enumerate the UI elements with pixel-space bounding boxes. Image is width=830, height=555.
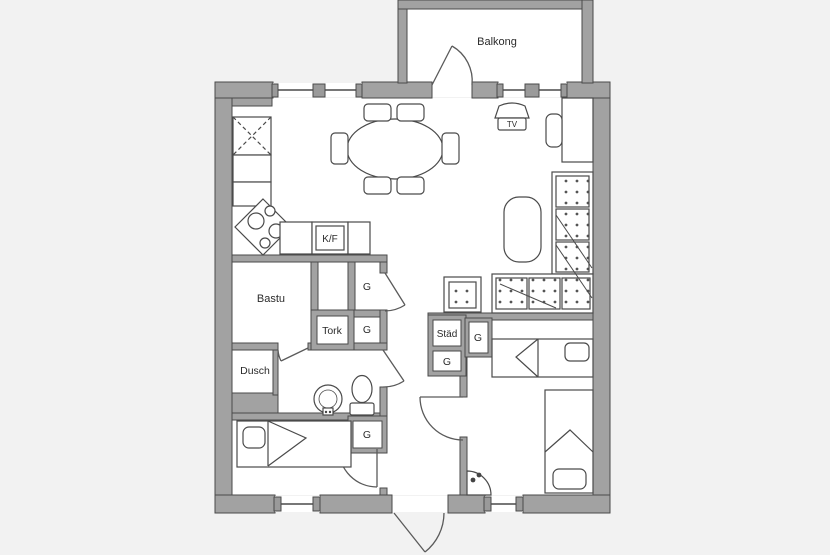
entry-door-opening — [392, 496, 448, 512]
window-bottom-2 — [484, 496, 523, 512]
wall-shower-block — [232, 393, 278, 413]
wall-bedroom2-left-lower — [460, 437, 467, 495]
window-post — [313, 84, 325, 97]
wall-kitchen-corner — [232, 98, 272, 106]
pillow — [243, 427, 265, 448]
bedroom-1 — [237, 421, 351, 467]
stove-burner — [265, 206, 275, 216]
door-swing-arc — [425, 513, 444, 552]
armchair-cushion — [449, 282, 476, 308]
window-post — [356, 84, 362, 97]
window-top-1 — [272, 83, 362, 97]
window-post — [497, 84, 503, 97]
kitchen-counter — [280, 222, 312, 254]
wall-bottom-2 — [320, 495, 392, 513]
shower-label: Dusch — [240, 365, 270, 377]
balcony-label: Balkong — [477, 36, 517, 48]
kitchen-counter — [348, 222, 370, 254]
dining-chair — [397, 177, 424, 194]
sofa-cushion — [529, 278, 560, 309]
wardrobe-label: G — [363, 281, 371, 293]
stove-burner — [260, 238, 270, 248]
corner-sink-tap — [471, 478, 476, 483]
window-post — [272, 84, 278, 97]
wall-bottom-4 — [523, 495, 610, 513]
sofa-cushion — [556, 209, 589, 240]
balcony-wall-left — [398, 0, 407, 83]
window-post — [561, 84, 567, 97]
desk — [562, 98, 593, 162]
tv-unit — [495, 103, 529, 118]
tv-label: TV — [507, 120, 518, 129]
door-leaf — [394, 513, 425, 552]
wall-hall-stub — [380, 488, 387, 495]
dining-chair — [364, 104, 391, 121]
wardrobe-label: G — [363, 429, 371, 441]
wall-left — [215, 82, 232, 513]
cleaning-closet-label: Städ — [437, 329, 458, 340]
sofa-cushion — [562, 278, 590, 309]
dining-chair — [364, 177, 391, 194]
window-bottom-1 — [274, 496, 320, 512]
wardrobe-label: G — [474, 332, 482, 344]
wall-sauna-bath-left — [232, 343, 278, 350]
window-post — [484, 497, 491, 511]
kitchen-counter — [233, 155, 271, 182]
window-post — [313, 497, 320, 511]
wall-shaft-right — [348, 262, 355, 312]
wall-kitchen-sauna — [232, 255, 387, 262]
balcony-door-opening — [432, 83, 472, 97]
window-post — [516, 497, 523, 511]
window-post — [274, 497, 281, 511]
dining-chair — [331, 133, 348, 164]
wall-top-3 — [472, 82, 498, 98]
wardrobe-label: G — [443, 356, 451, 368]
wardrobe-label: G — [363, 324, 371, 336]
balcony-wall-right — [582, 0, 593, 83]
desk-chair — [546, 114, 562, 147]
dining-table — [347, 119, 443, 179]
dining-chair — [442, 133, 459, 164]
tap-handle — [329, 411, 331, 413]
window-top-2 — [497, 83, 567, 97]
tap-handle — [325, 411, 327, 413]
sofa-cushion — [556, 176, 589, 207]
corner-sink-tap — [477, 473, 482, 478]
wall-top-4 — [567, 82, 610, 98]
bathroom-sink-basin — [319, 390, 337, 408]
floorplan-svg: Balkong K/F Bastu Tork G G Städ G G G Du… — [0, 0, 830, 555]
drying-cabinet-label: Tork — [322, 325, 343, 337]
wall-bottom-3 — [448, 495, 485, 513]
stove-burner — [248, 213, 264, 229]
sauna-label: Bastu — [257, 293, 285, 305]
wall-right — [593, 82, 610, 513]
shower-divider — [273, 350, 278, 395]
fridge-freezer-label: K/F — [322, 234, 338, 245]
wall-bottom-1 — [215, 495, 275, 513]
wall-hall-upper — [380, 262, 387, 273]
sink-tap — [323, 408, 333, 415]
wall-top-2 — [362, 82, 432, 98]
toilet-bowl — [352, 376, 372, 403]
toilet-tank — [350, 403, 374, 415]
pillow — [565, 343, 589, 361]
pillow — [553, 469, 586, 489]
wall-top-1 — [215, 82, 273, 98]
balcony-wall-top — [398, 0, 593, 9]
coffee-table — [504, 197, 541, 262]
dining-chair — [397, 104, 424, 121]
floorplan-canvas: Balkong K/F Bastu Tork G G Städ G G G Du… — [0, 0, 830, 555]
entry-door — [394, 513, 444, 552]
window-post — [525, 84, 539, 97]
